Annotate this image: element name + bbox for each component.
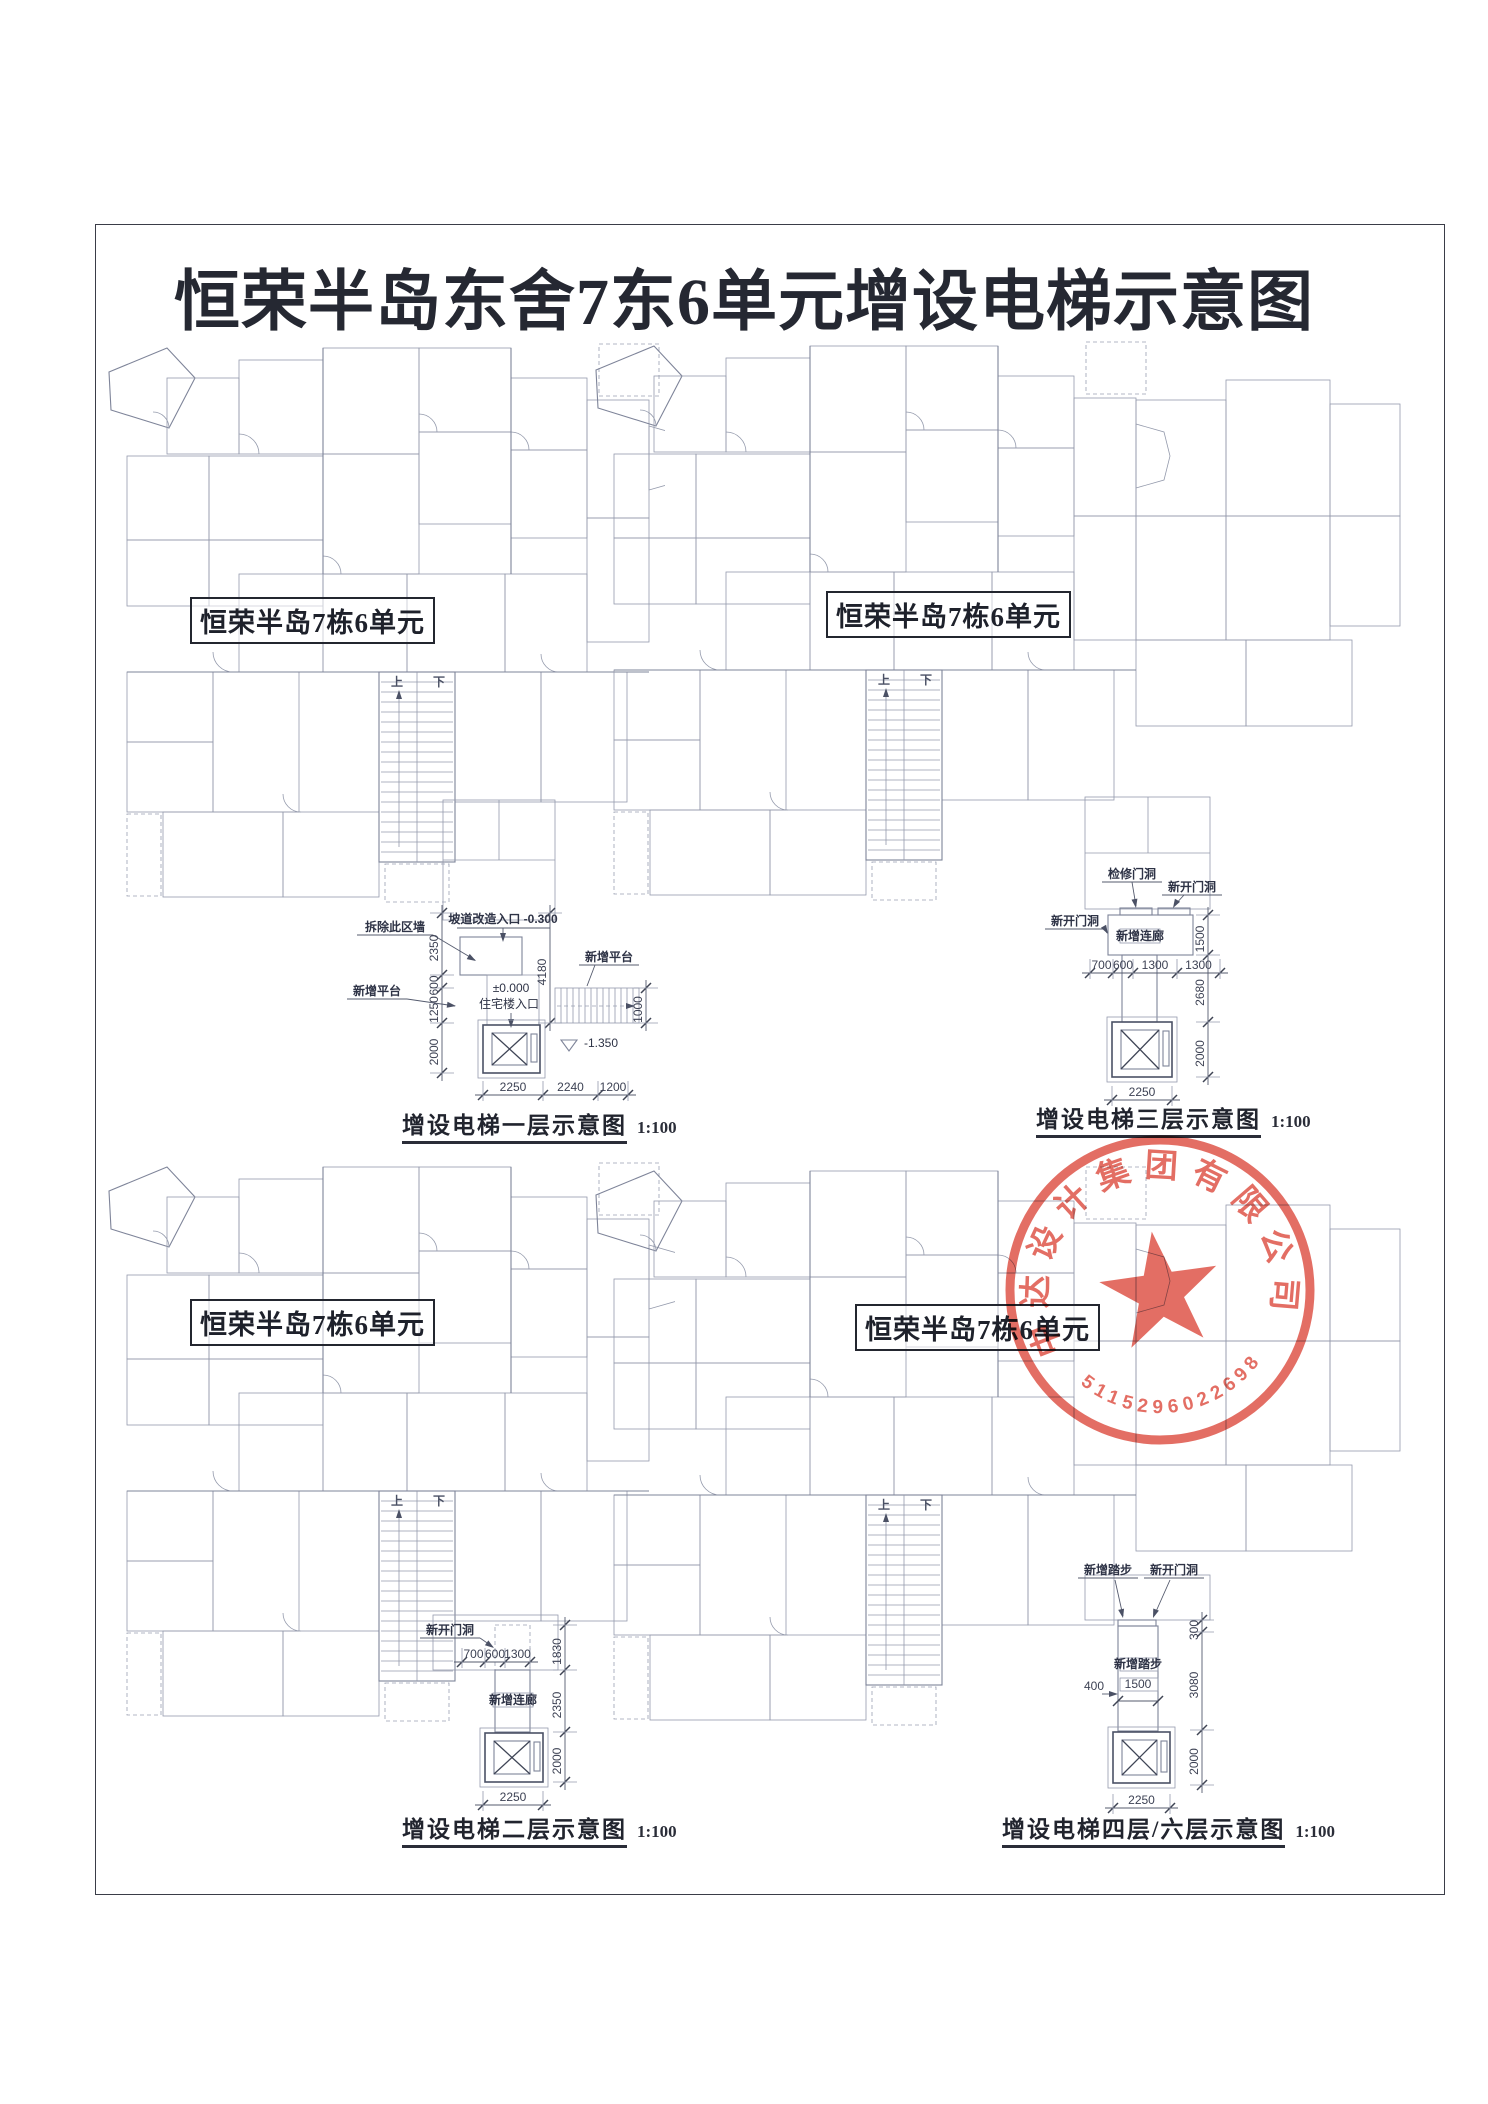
caption-text: 增设电梯四层/六层示意图: [1002, 1817, 1285, 1848]
svg-text:1500: 1500: [1125, 1677, 1152, 1691]
svg-text:2250: 2250: [1129, 1085, 1156, 1099]
plan-caption-second-floor: 增设电梯二层示意图1:100: [402, 1810, 677, 1844]
svg-text:新开门洞: 新开门洞: [1150, 1562, 1198, 1577]
svg-text:600: 600: [1113, 958, 1133, 972]
svg-text:上: 上: [878, 1497, 890, 1512]
svg-text:2680: 2680: [1193, 979, 1207, 1006]
plan-caption-first-floor: 增设电梯一层示意图1:100: [402, 1106, 677, 1140]
svg-text:2350: 2350: [550, 1691, 564, 1718]
svg-text:下: 下: [920, 1498, 932, 1512]
svg-text:2000: 2000: [427, 1038, 441, 1065]
svg-text:600: 600: [427, 975, 441, 995]
svg-text:700: 700: [1091, 958, 1111, 972]
svg-text:上: 上: [391, 674, 403, 689]
svg-text:新增踏步: 新增踏步: [1084, 1562, 1132, 1577]
company-seal-stamp: 中达设计集团有限公司5115296022698: [975, 1105, 1345, 1475]
unit-label-second-floor: 恒荣半岛7栋6单元: [190, 1299, 435, 1346]
caption-text: 增设电梯一层示意图: [402, 1113, 627, 1144]
svg-text:新开门洞: 新开门洞: [426, 1622, 474, 1637]
svg-text:2000: 2000: [1193, 1040, 1207, 1067]
svg-text:1250: 1250: [427, 996, 441, 1023]
unit-label-third-floor: 恒荣半岛7栋6单元: [826, 591, 1071, 638]
svg-text:新增踏步: 新增踏步: [1114, 1656, 1162, 1671]
svg-text:下: 下: [920, 673, 932, 687]
svg-text:2350: 2350: [427, 934, 441, 961]
caption-scale: 1:100: [637, 1822, 677, 1841]
svg-text:700: 700: [463, 1647, 483, 1661]
svg-text:检修门洞: 检修门洞: [1108, 866, 1156, 881]
svg-text:2250: 2250: [500, 1080, 527, 1094]
svg-text:新开门洞: 新开门洞: [1051, 913, 1099, 928]
svg-text:4180: 4180: [535, 958, 549, 985]
svg-text:新增连廊: 新增连廊: [489, 1692, 537, 1707]
scanned-drawing-page: 恒荣半岛东舍7东6单元增设电梯示意图 上下坡道改造入口 -0.300拆除此区墙2…: [0, 0, 1488, 2104]
svg-text:新开门洞: 新开门洞: [1168, 879, 1216, 894]
svg-text:上: 上: [391, 1493, 403, 1508]
caption-scale: 1:100: [1295, 1822, 1335, 1841]
plan-caption-fourth-sixth-floor: 增设电梯四层/六层示意图1:100: [1002, 1810, 1335, 1844]
svg-text:1830: 1830: [550, 1638, 564, 1665]
svg-text:600: 600: [485, 1647, 505, 1661]
svg-text:2250: 2250: [500, 1790, 527, 1804]
svg-text:下: 下: [433, 1494, 445, 1508]
caption-text: 增设电梯二层示意图: [402, 1817, 627, 1848]
svg-text:1500: 1500: [1193, 925, 1207, 952]
svg-text:新增平台: 新增平台: [353, 983, 401, 998]
svg-text:下: 下: [433, 675, 445, 689]
unit-label-first-floor: 恒荣半岛7栋6单元: [190, 597, 435, 644]
svg-text:新增连廊: 新增连廊: [1116, 928, 1164, 943]
floor-plan-third-floor: 上下检修门洞新开门洞新开门洞新增连廊7006001300130015002680…: [570, 325, 1415, 1115]
svg-text:拆除此区墙: 拆除此区墙: [365, 919, 425, 934]
svg-text:上: 上: [878, 672, 890, 687]
svg-text:2250: 2250: [1128, 1793, 1155, 1807]
svg-text:1300: 1300: [1142, 958, 1169, 972]
svg-text:400: 400: [1084, 1679, 1104, 1693]
svg-text:1300: 1300: [504, 1647, 531, 1661]
svg-text:住宅楼入口: 住宅楼入口: [479, 996, 539, 1011]
svg-text:2000: 2000: [1187, 1748, 1201, 1775]
svg-text:2000: 2000: [550, 1747, 564, 1774]
svg-text:300: 300: [1187, 1620, 1201, 1640]
svg-text:3080: 3080: [1187, 1671, 1201, 1698]
svg-text:±0.000: ±0.000: [493, 981, 530, 995]
caption-scale: 1:100: [637, 1118, 677, 1137]
